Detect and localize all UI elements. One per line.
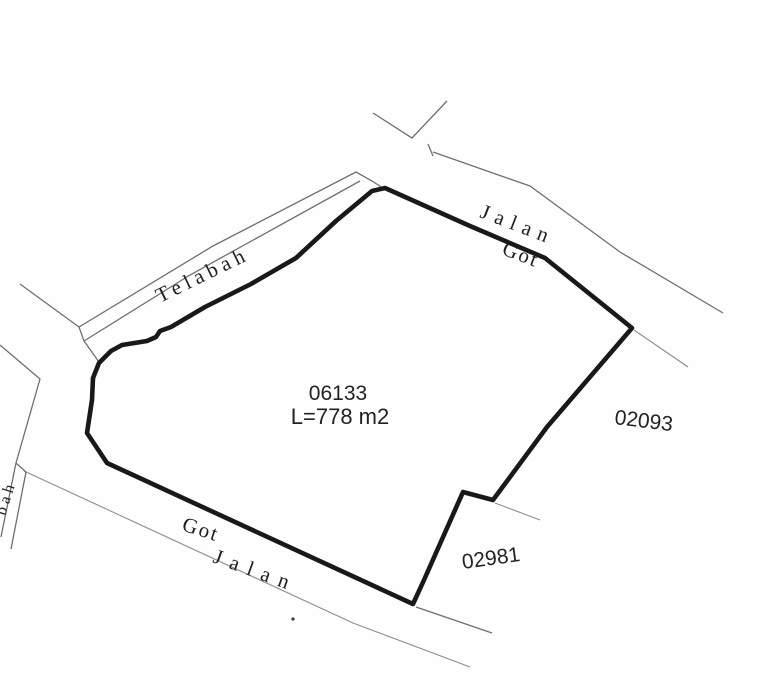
top-road-fork-line [373, 101, 447, 138]
telabah-channel-tip-cap [79, 327, 99, 362]
parcel-02981-spur-line [495, 503, 540, 520]
parcel-id-label: 06133 [309, 382, 367, 405]
edge-label-bah-fragment: bah [0, 479, 20, 518]
west-road-upper-line [20, 284, 79, 327]
parcel-area-label: L=778 m2 [291, 404, 389, 429]
west-road-lower-line [0, 345, 40, 463]
east-boundary-spur-line [634, 330, 688, 367]
top-road-edge-line [433, 152, 723, 313]
west-strip-cap [16, 463, 26, 472]
top-road-tick [428, 144, 433, 156]
neighbor-parcel-02093-label: 02093 [613, 406, 674, 436]
bottom-corner-spur-line [416, 607, 492, 633]
neighbor-parcel-02981-label: 02981 [460, 543, 521, 574]
survey-point-dot [291, 617, 294, 620]
road-label-jalan-bottom: Jalan [210, 544, 301, 597]
road-label-got-bottom: Got [179, 512, 222, 546]
cadastral-map-scan: Jalan Got Telabah Got Jalan bah 06133 L=… [0, 0, 762, 700]
survey-drawing: Jalan Got Telabah Got Jalan bah 06133 L=… [0, 0, 762, 700]
